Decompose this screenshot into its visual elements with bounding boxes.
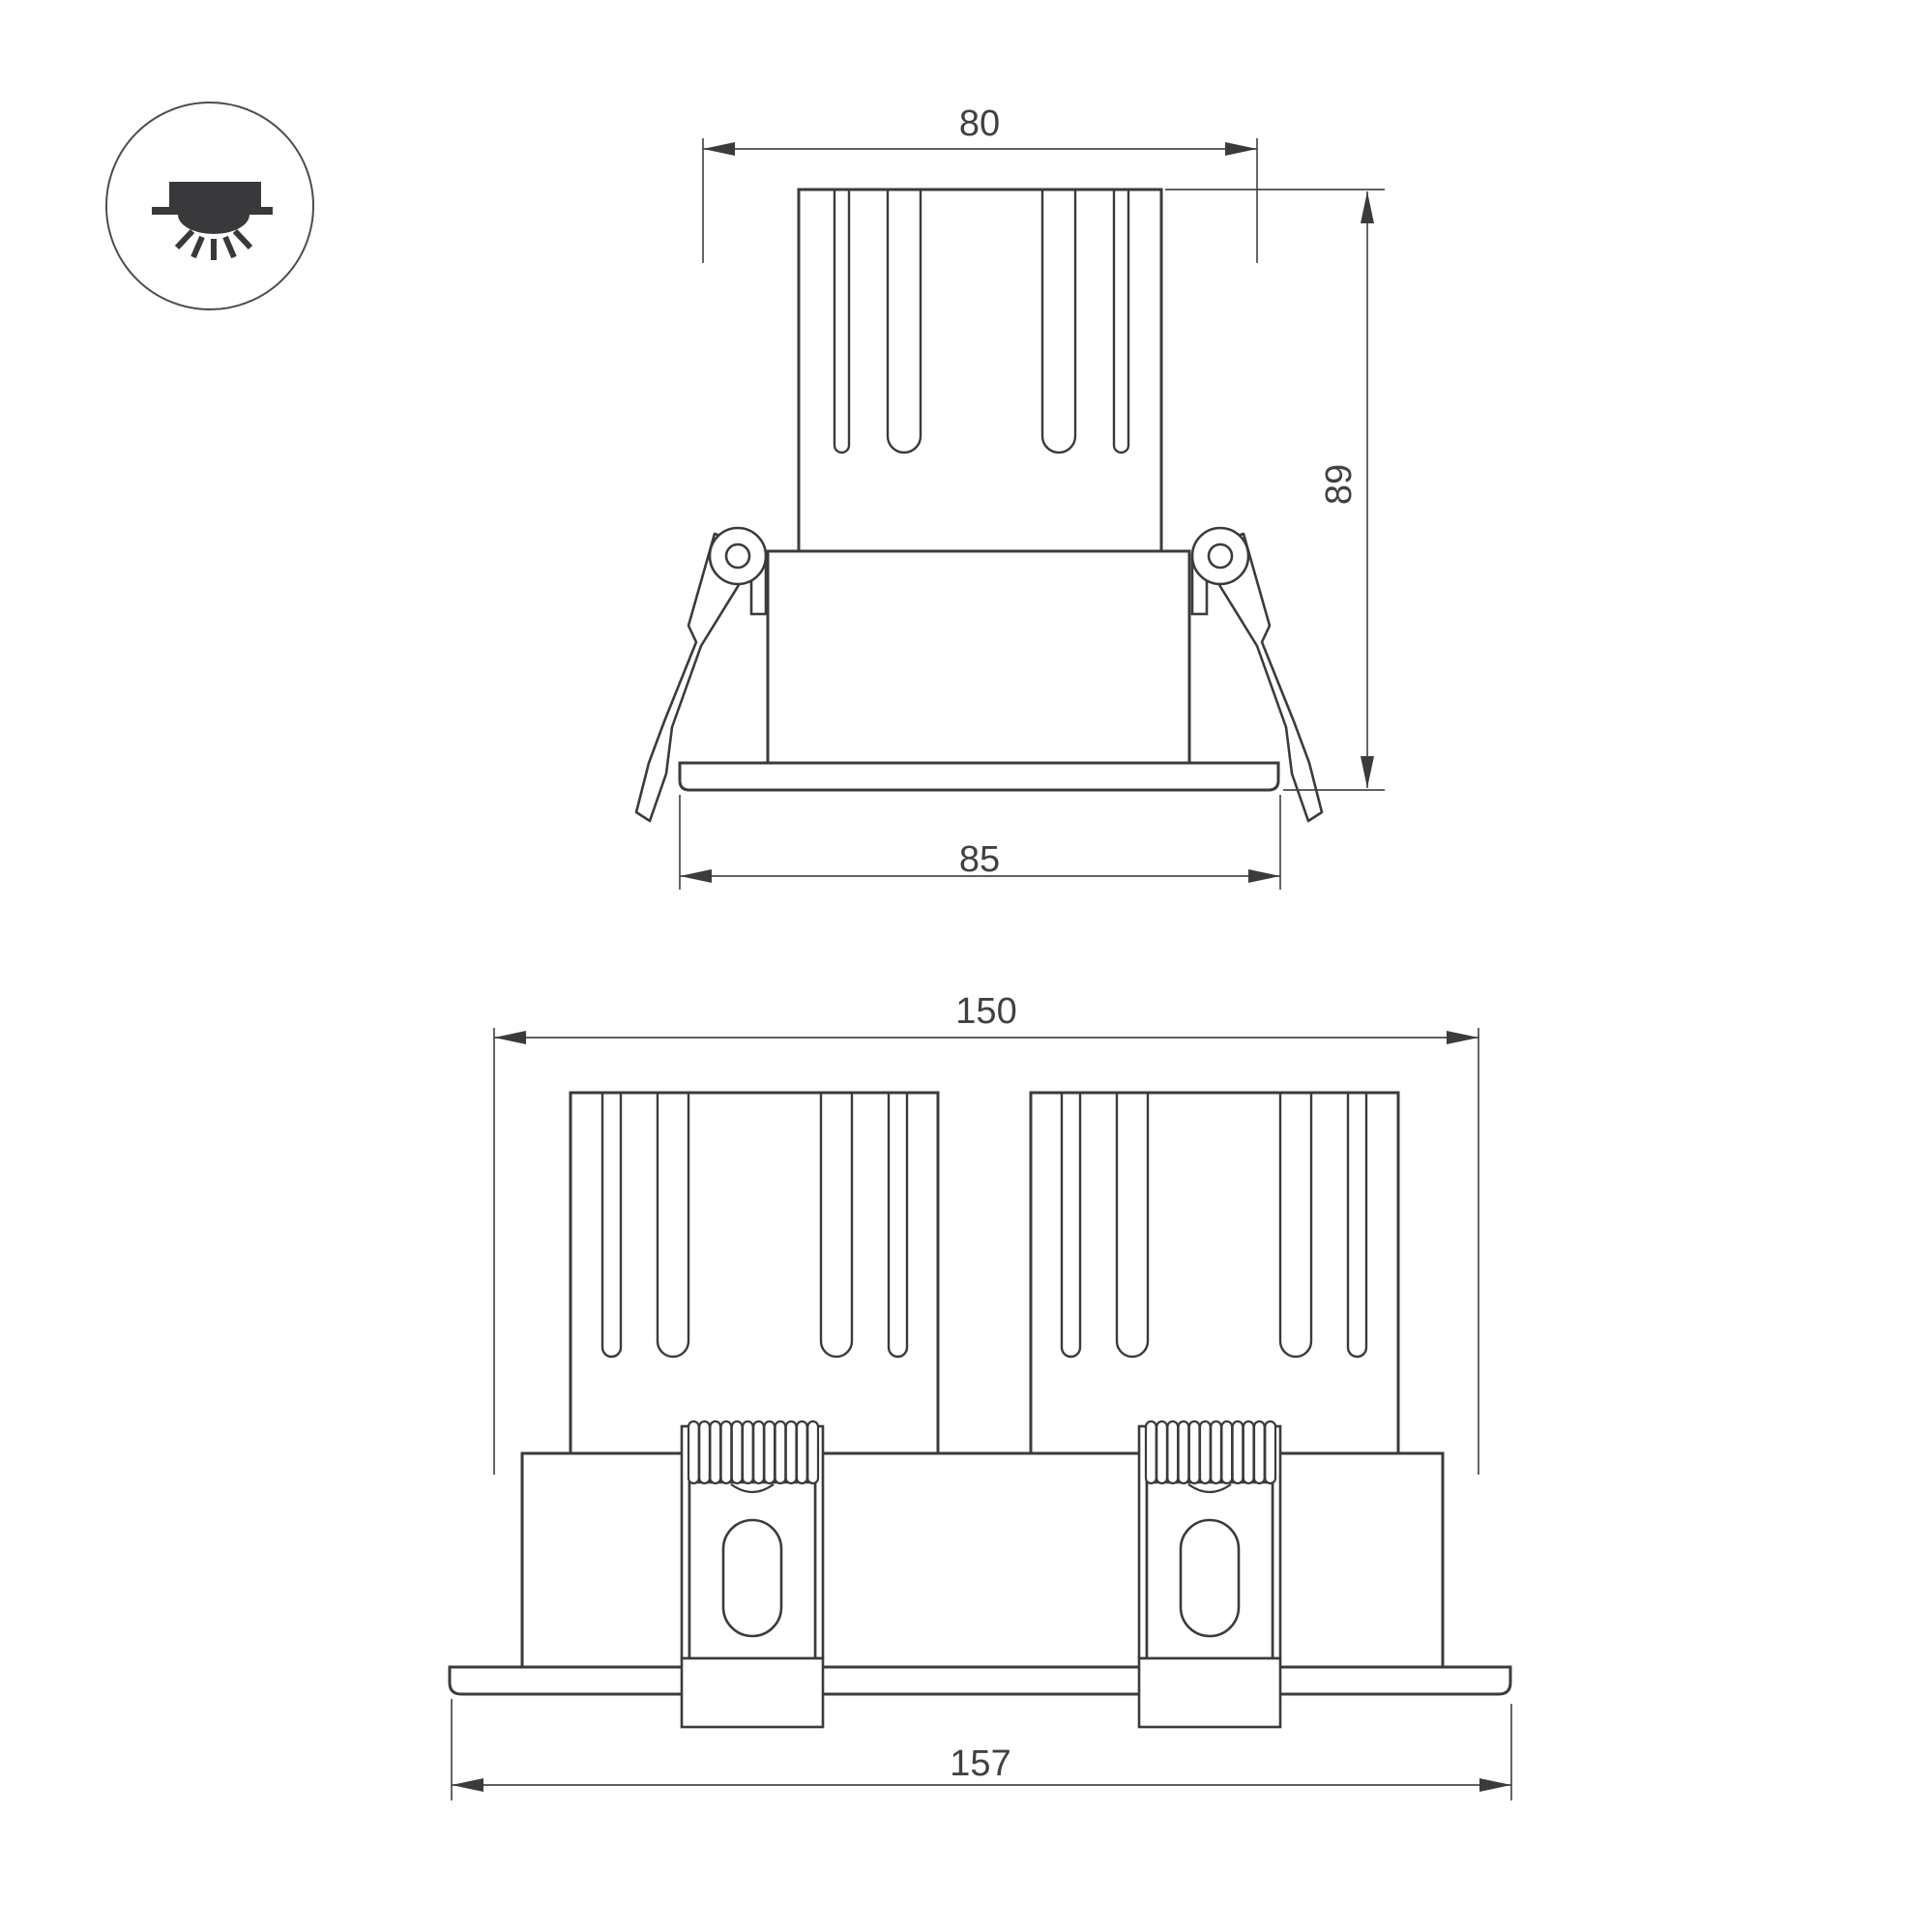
single-downlight-front-view: 80 89 85 <box>636 103 1385 890</box>
clamp-foot-block <box>682 1658 823 1727</box>
icon-light-rays <box>177 231 250 260</box>
arrowhead-right <box>1225 142 1257 156</box>
heatsink-body-right <box>1031 1093 1398 1453</box>
trim-body <box>768 551 1189 763</box>
icon-ceiling-flange <box>152 207 273 215</box>
dimension-label: 150 <box>955 991 1016 1032</box>
spring-clamp-right <box>1139 1421 1280 1727</box>
arrowhead-left <box>494 1031 526 1044</box>
arrowhead-left <box>703 142 735 156</box>
arrowhead-right <box>1248 869 1280 883</box>
recessed-downlight-icon <box>106 102 313 309</box>
coil-spring <box>688 1421 818 1483</box>
heatsink-body-left <box>571 1093 938 1453</box>
trim-body <box>522 1453 1443 1667</box>
clamp-foot-block <box>1139 1658 1280 1727</box>
dimension-height: 89 <box>1165 190 1385 790</box>
icon-lamp-body <box>169 182 261 209</box>
dimension-width-bottom: 157 <box>452 1699 1511 1800</box>
spring-clamp-left <box>682 1421 823 1727</box>
dimension-label: 85 <box>959 839 1000 880</box>
arrowhead-bottom <box>1361 756 1374 788</box>
dimension-width-bottom: 85 <box>680 795 1280 890</box>
arrowhead-left <box>680 869 712 883</box>
arrowhead-right <box>1447 1031 1478 1044</box>
dimension-label: 157 <box>950 1743 1010 1784</box>
clamp-slot-hole <box>723 1520 781 1636</box>
arrowhead-right <box>1479 1778 1511 1792</box>
arrowhead-top <box>1361 191 1374 223</box>
dimension-label: 89 <box>1319 464 1360 505</box>
mounting-flange <box>450 1667 1510 1694</box>
clamp-slot-hole <box>1181 1520 1239 1636</box>
technical-drawing: 80 89 85 <box>0 0 1932 1932</box>
double-downlight-front-view: 150 157 <box>450 991 1511 1800</box>
coil-spring <box>1146 1421 1275 1483</box>
arrowhead-left <box>452 1778 483 1792</box>
clip-pivot-hole <box>1209 544 1232 568</box>
dimension-label: 80 <box>959 103 1000 144</box>
drawing-canvas: 80 89 85 <box>0 0 1932 1932</box>
clip-pivot-hole <box>726 544 749 568</box>
mounting-flange <box>680 763 1278 790</box>
heatsink-body <box>799 190 1161 551</box>
